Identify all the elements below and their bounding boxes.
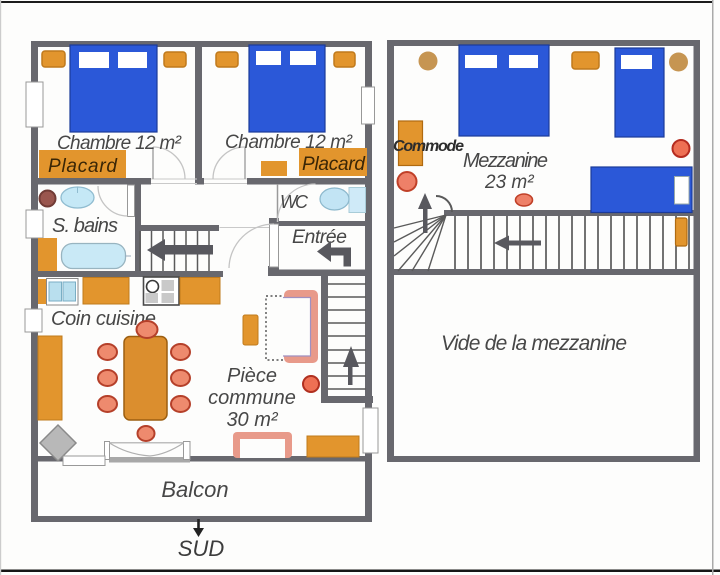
svg-text:S. bains: S. bains (52, 215, 118, 237)
svg-text:30 m²: 30 m² (226, 409, 278, 431)
svg-text:Placard: Placard (302, 154, 366, 175)
svg-text:commune: commune (208, 387, 296, 409)
svg-text:Entrée: Entrée (292, 226, 347, 248)
svg-text:Pièce: Pièce (227, 365, 277, 387)
svg-text:Mezzanine: Mezzanine (463, 150, 548, 172)
svg-text:Commode: Commode (393, 138, 464, 155)
svg-text:23 m²: 23 m² (484, 172, 534, 193)
svg-text:WC: WC (280, 192, 309, 212)
svg-text:Balcon: Balcon (161, 477, 228, 502)
svg-text:SUD: SUD (178, 536, 225, 561)
svg-text:Placard: Placard (48, 156, 118, 177)
svg-text:Vide de la mezzanine: Vide de la mezzanine (441, 332, 627, 355)
